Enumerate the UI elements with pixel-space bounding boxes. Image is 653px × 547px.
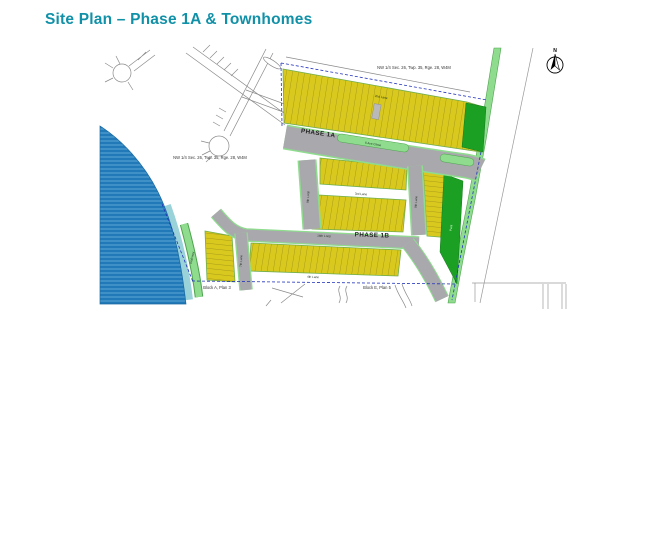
phase-1b-label: PHASE 1B [355, 231, 390, 239]
site-plan-map: NW 1/4 Sec. 26, Twp. 35, Rge. 28, W4M NW… [0, 0, 653, 547]
park-block-north [462, 103, 486, 152]
block-e-label: Block E, Plan 5 [363, 285, 391, 290]
lot-block-west-column [205, 231, 235, 282]
page: Site Plan – Phase 1A & Townhomes [0, 0, 653, 547]
water-area [100, 126, 187, 304]
road-southeast-road [408, 243, 442, 299]
street-label-lane-bottom: 4th Lane [307, 275, 319, 279]
survey-right-edges [472, 283, 566, 309]
north-letter: N [553, 48, 557, 54]
street-label-lane-right: 9th Lane [414, 196, 419, 209]
corridor-c [242, 90, 290, 113]
boundary-west-upper [281, 63, 282, 126]
block-a-label: Block A, Plan 3 [203, 285, 231, 290]
street-label-lane-west: 7th Lane [239, 255, 244, 268]
street-label-lane-mid: 3rd Lane [355, 192, 368, 197]
street-label-loop-left: 9th Loop [306, 191, 310, 203]
street-label-loop-south: 16th Loop [317, 234, 331, 238]
road-centerline-y [266, 284, 305, 306]
culdesac-bulb-nw [113, 64, 131, 82]
section-label-right: NW 1/4 Sec. 26, Twp. 35, Rge. 28, W4M [377, 65, 451, 70]
north-arrow: N [547, 48, 563, 73]
road-line-art [105, 45, 292, 162]
culdesac-bulb-centre [209, 136, 229, 156]
park-label: Park [449, 224, 454, 231]
corridor-a [186, 47, 292, 125]
section-label-left: NW 1/4 Sec. 26, Twp. 35, Rge. 28, W4M [173, 155, 247, 160]
lot-block-mid-lower [312, 195, 406, 232]
lot-block-south [249, 243, 401, 276]
